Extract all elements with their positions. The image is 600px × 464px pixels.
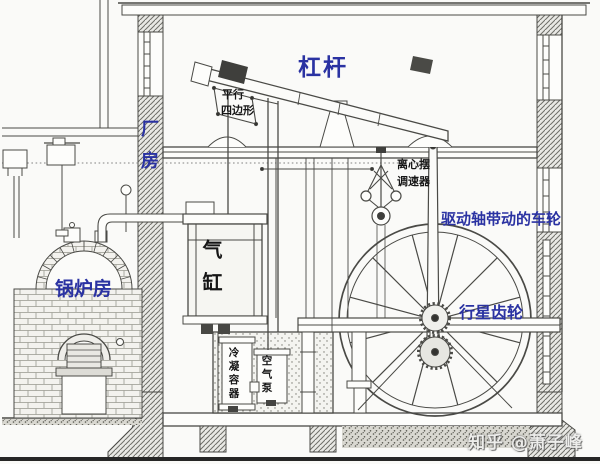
label-governor-line2: 调速器 xyxy=(397,176,430,187)
steam-engine-cross-section-diagram: 杠杆 平行 四边形 厂房 离心摆 调速器 驱动轴带动的车轮 气缸 锅炉房 行星齿… xyxy=(0,0,600,464)
boiler-feed-apparatus xyxy=(3,138,131,238)
label-boiler-room: 锅炉房 xyxy=(55,280,112,299)
zhihu-watermark: 知乎 @萧子峰 xyxy=(468,428,583,453)
label-cylinder: 气缸 xyxy=(201,239,221,305)
boiler xyxy=(14,223,142,419)
centrifugal-governor xyxy=(261,147,402,318)
label-parallelogram-line2: 四边形 xyxy=(221,105,254,116)
label-parallelogram-line1: 平行 xyxy=(222,89,244,100)
label-lever: 杠杆 xyxy=(298,57,348,80)
label-planetary-gear: 行星齿轮 xyxy=(459,305,523,321)
label-drive-shaft-wheel: 驱动轴带动的车轮 xyxy=(441,212,561,227)
label-air-pump: 空气泵 xyxy=(261,355,272,396)
label-condenser: 冷凝容器 xyxy=(228,347,239,401)
label-governor-line1: 离心摆 xyxy=(397,159,430,170)
label-factory-building: 厂房 xyxy=(139,119,157,183)
